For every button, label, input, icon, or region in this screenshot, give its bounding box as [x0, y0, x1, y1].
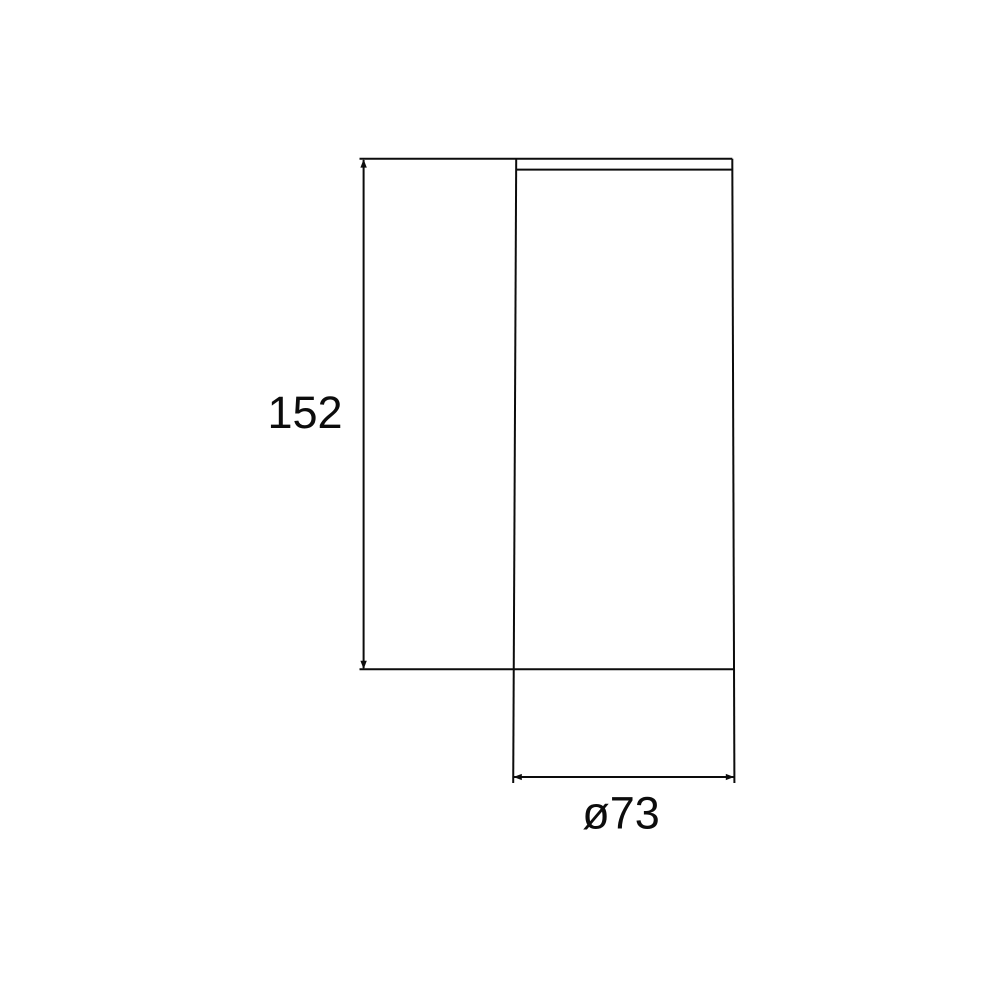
svg-text:152: 152: [267, 387, 342, 438]
svg-text:ø73: ø73: [582, 788, 660, 839]
